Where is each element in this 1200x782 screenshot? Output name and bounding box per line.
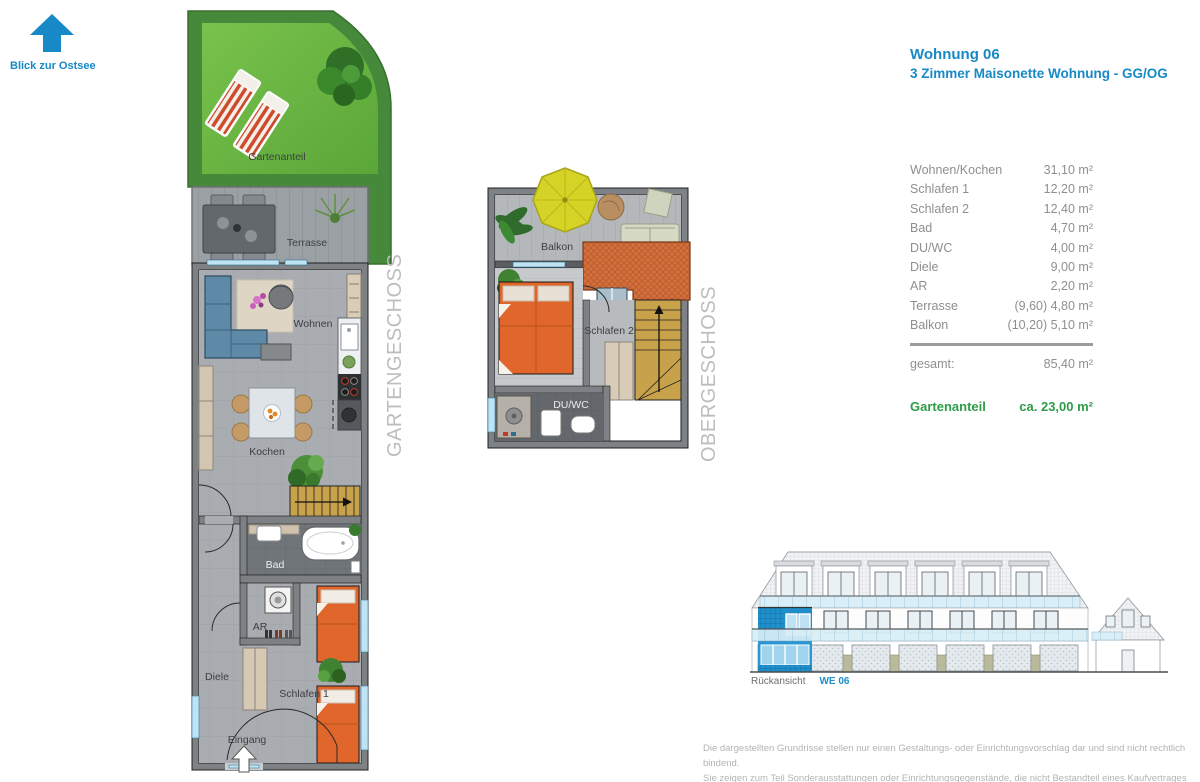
page-subtitle: 3 Zimmer Maisonette Wohnung - GG/OG [910, 66, 1195, 81]
table-row: Balkon (10,20) 5,10 m² [910, 316, 1093, 335]
room-label-duwc: DU/WC [553, 399, 589, 411]
elevation-view-label: Rückansicht [751, 676, 805, 687]
row-value: (10,20) 5,10 m² [1008, 316, 1093, 335]
disclaimer-line2: Sie zeigen zum Teil Sonderausstattungen … [703, 771, 1195, 782]
armchair-icon [269, 285, 293, 309]
view-direction-label: Blick zur Ostsee [10, 60, 110, 72]
round-table-icon [598, 194, 624, 220]
sink-icon [541, 410, 561, 436]
sliding-door [513, 262, 565, 267]
total-label: gesamt: [910, 354, 954, 374]
shower-room: DU/WC [488, 386, 610, 441]
disclaimer-line1: Die dargestellten Grundrisse stellen nur… [703, 741, 1195, 771]
title-block: Wohnung 06 3 Zimmer Maisonette Wohnung -… [910, 46, 1195, 81]
window [192, 696, 199, 738]
floorplan-gartengeschoss: Gartenanteil Terrasse [185, 8, 395, 773]
room-label-schlafen2: Schlafen 2 [584, 325, 634, 337]
table-row: Diele 9,00 m² [910, 258, 1093, 277]
cushion-icon [644, 189, 672, 217]
row-label: Balkon [910, 316, 948, 335]
brochure-page: Blick zur Ostsee [0, 0, 1200, 782]
table-row: Schlafen 2 12,40 m² [910, 200, 1093, 219]
level-label-obergeschoss: OBERGESCHOSS [698, 286, 721, 462]
row-label: DU/WC [910, 239, 952, 258]
garden-share-row: Gartenanteil ca. 23,00 m² [910, 399, 1093, 414]
stove-icon [338, 374, 361, 400]
row-label: AR [910, 277, 927, 296]
row-label: Bad [910, 219, 932, 238]
page-title: Wohnung 06 [910, 46, 1195, 63]
room-label-gartenanteil: Gartenanteil [248, 151, 305, 163]
total-value: 85,40 m² [1044, 354, 1093, 374]
table-total-row: gesamt: 85,40 m² [910, 354, 1093, 374]
north-view-arrow-icon [28, 12, 76, 54]
row-value: 4,70 m² [1051, 219, 1093, 238]
coffee-table-icon [261, 344, 291, 360]
interior-wall [240, 575, 361, 583]
kitchen-sink-icon [341, 324, 358, 350]
room-label-schlafen1: Schlafen 1 [279, 688, 329, 700]
balcony-railing [752, 629, 1088, 641]
bed-icon [317, 586, 359, 662]
toilet-icon [571, 416, 595, 433]
garden-share-label: Gartenanteil [910, 399, 986, 414]
table-row: Wohnen/Kochen 31,10 m² [910, 161, 1093, 180]
bathroom: Bad [240, 516, 361, 575]
herb-pot-icon [343, 356, 355, 368]
garden-share-value: ca. 23,00 m² [1019, 399, 1093, 414]
floorplan-obergeschoss: Balkon Schlafen 2 [483, 158, 695, 458]
door-opening [205, 516, 233, 524]
double-bed-icon [499, 282, 573, 374]
terrace-area: Terrasse [192, 187, 368, 264]
kitchen-counter-icon [338, 318, 361, 430]
elevation-unit-label: WE 06 [819, 676, 849, 687]
window [361, 600, 368, 652]
table-row: DU/WC 4,00 m² [910, 239, 1093, 258]
window [488, 398, 495, 432]
staircase-down-icon [290, 486, 360, 519]
row-label: Diele [910, 258, 939, 277]
window [361, 686, 368, 750]
washing-machine-icon [265, 587, 291, 613]
row-label: Wohnen/Kochen [910, 161, 1002, 180]
table-row: Bad 4,70 m² [910, 219, 1093, 238]
row-value: 9,00 m² [1051, 258, 1093, 277]
table-row: AR 2,20 m² [910, 277, 1093, 296]
building-elevation [750, 548, 1170, 678]
row-value: 12,20 m² [1044, 180, 1093, 199]
row-value: (9,60) 4,80 m² [1014, 297, 1093, 316]
table-row: Schlafen 1 12,20 m² [910, 180, 1093, 199]
parasol-icon [533, 168, 597, 232]
room-label-balkon: Balkon [541, 241, 573, 253]
roof-balcony-railing [760, 596, 1080, 608]
room-label-kochen: Kochen [249, 446, 285, 458]
row-label: Schlafen 2 [910, 200, 969, 219]
radiator-icon [351, 561, 360, 573]
staircase-up-icon [635, 300, 681, 400]
table-divider [910, 343, 1093, 346]
row-label: Schlafen 1 [910, 180, 969, 199]
room-label-wohnen: Wohnen [294, 318, 333, 330]
sink-icon [257, 526, 281, 541]
room-label-terrasse: Terrasse [287, 237, 327, 249]
room-label-bad: Bad [266, 559, 285, 571]
row-value: 2,20 m² [1051, 277, 1093, 296]
room-label-diele: Diele [205, 671, 229, 683]
row-value: 31,10 m² [1044, 161, 1093, 180]
elevation-caption: RückansichtWE 06 [751, 676, 849, 687]
row-label: Terrasse [910, 297, 958, 316]
row-value: 12,40 m² [1044, 200, 1093, 219]
table-row: Terrasse (9,60) 4,80 m² [910, 297, 1093, 316]
row-value: 4,00 m² [1051, 239, 1093, 258]
area-table: Wohnen/Kochen 31,10 m² Schlafen 1 12,20 … [910, 161, 1093, 374]
small-plant-icon [349, 524, 361, 536]
side-house [1092, 598, 1164, 672]
shower-icon [497, 396, 531, 438]
level-label-gartengeschoss: GARTENGESCHOSS [384, 254, 407, 457]
sideboard-icon [199, 366, 213, 470]
disclaimer: Die dargestellten Grundrisse stellen nur… [703, 741, 1195, 782]
room-label-eingang: Eingang [228, 734, 267, 746]
